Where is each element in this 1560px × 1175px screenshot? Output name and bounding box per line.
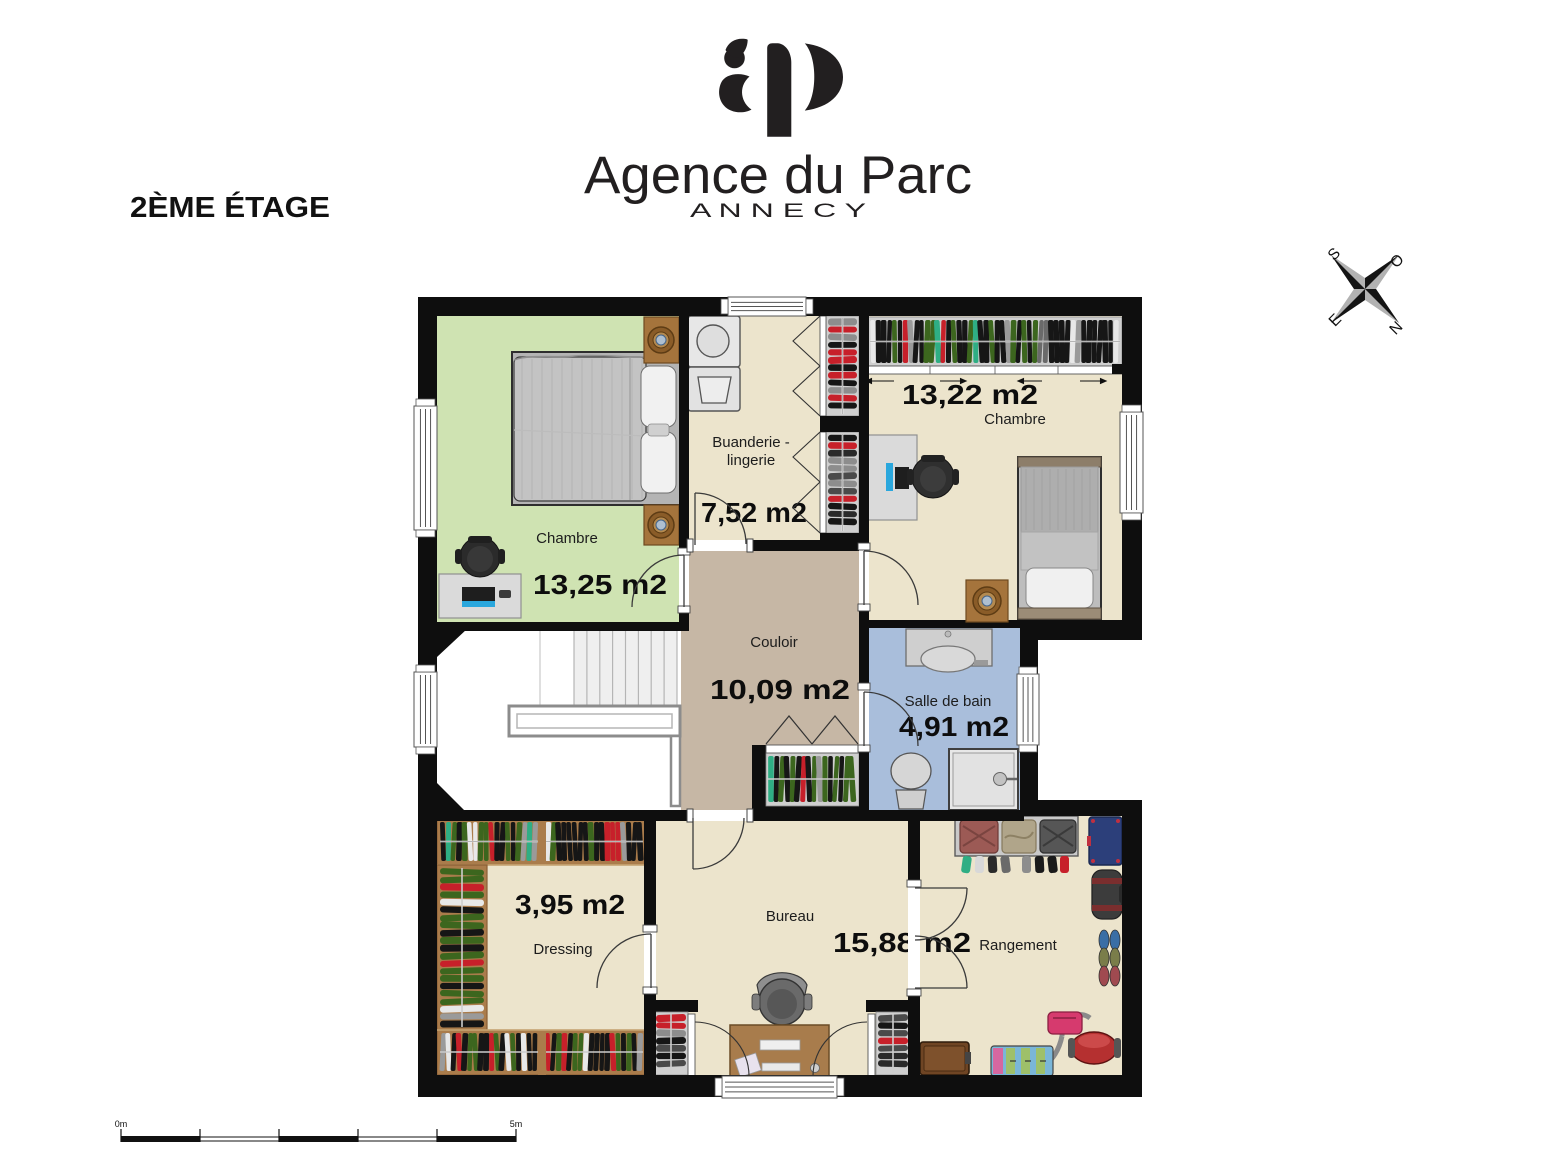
svg-text:2ÈME ÉTAGE: 2ÈME ÉTAGE: [130, 192, 330, 224]
svg-text:Couloir: Couloir: [750, 634, 798, 651]
svg-text:13,22 m2: 13,22 m2: [902, 379, 1038, 410]
svg-text:lingerie: lingerie: [727, 452, 775, 469]
svg-text:3,95 m2: 3,95 m2: [515, 889, 625, 920]
svg-text:Bureau: Bureau: [766, 908, 814, 925]
svg-text:4,91 m2: 4,91 m2: [899, 711, 1009, 742]
svg-text:Dressing: Dressing: [533, 941, 592, 958]
svg-text:Chambre: Chambre: [536, 530, 598, 547]
svg-text:Salle de bain: Salle de bain: [905, 693, 992, 710]
svg-text:Chambre: Chambre: [984, 411, 1046, 428]
svg-text:0m: 0m: [115, 1119, 128, 1129]
svg-text:13,25 m2: 13,25 m2: [533, 569, 667, 600]
svg-text:A N N E C Y: A N N E C Y: [690, 200, 866, 222]
svg-text:7,52 m2: 7,52 m2: [701, 497, 807, 528]
svg-text:Agence du Parc: Agence du Parc: [584, 146, 972, 205]
svg-text:10,09 m2: 10,09 m2: [710, 674, 850, 705]
svg-text:Buanderie -: Buanderie -: [712, 434, 790, 451]
svg-text:15,88 m2: 15,88 m2: [833, 927, 971, 958]
svg-text:5m: 5m: [510, 1119, 523, 1129]
svg-text:Rangement: Rangement: [979, 937, 1057, 954]
